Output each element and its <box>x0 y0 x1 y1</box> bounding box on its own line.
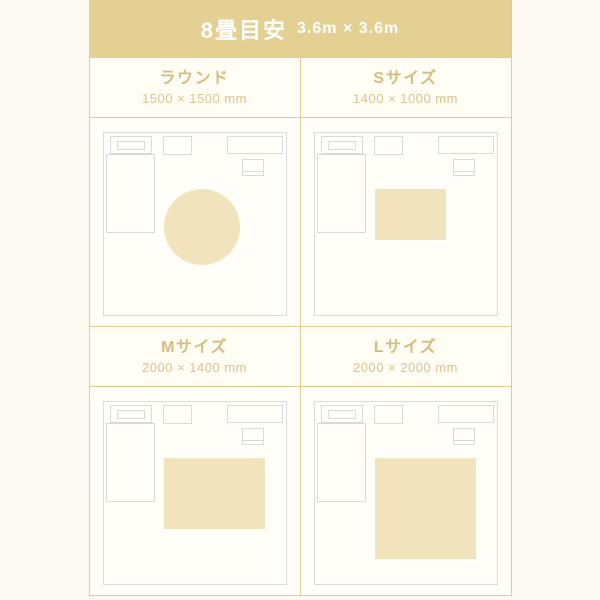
panel-m-header: Mサイズ 2000 × 1400 mm <box>90 327 300 387</box>
panel-l-header: Lサイズ 2000 × 2000 mm <box>301 327 511 387</box>
bed <box>317 154 366 233</box>
rug-l <box>375 458 476 559</box>
panel-l: Lサイズ 2000 × 2000 mm <box>300 326 511 595</box>
size-guide-card: 8畳目安 3.6m × 3.6m ラウンド 1500 × 1500 mm <box>89 0 512 596</box>
shelf <box>163 405 192 424</box>
room-diagram-area <box>90 118 300 326</box>
chair-back-line <box>243 171 263 172</box>
room-diagram-area <box>301 118 511 326</box>
room-diagram-area <box>90 387 300 595</box>
rug-s <box>375 189 446 240</box>
tatami-title: 8畳目安 <box>201 13 287 45</box>
tatami-header: 8畳目安 3.6m × 3.6m <box>90 0 511 57</box>
desk <box>227 136 283 154</box>
pillow-inner <box>328 141 356 150</box>
bed <box>106 423 155 502</box>
desk <box>438 136 494 154</box>
shelf <box>374 136 403 155</box>
rug-m <box>164 458 265 529</box>
panel-title: Lサイズ <box>374 338 437 357</box>
size-panel-grid: ラウンド 1500 × 1500 mm S <box>90 57 511 595</box>
panel-size-label: 2000 × 1400 mm <box>142 360 247 375</box>
panel-title: Mサイズ <box>161 338 228 357</box>
bed <box>317 423 366 502</box>
chair-back-line <box>243 440 263 441</box>
panel-s: Sサイズ 1400 × 1000 mm <box>300 57 511 326</box>
chair-back-line <box>454 440 474 441</box>
shelf <box>163 136 192 155</box>
room-outline <box>103 401 287 585</box>
shelf <box>374 405 403 424</box>
panel-size-label: 1400 × 1000 mm <box>353 91 458 106</box>
pillow-inner <box>328 410 356 419</box>
room-outline <box>103 132 287 316</box>
chair <box>242 428 264 445</box>
room-outline <box>314 401 498 585</box>
chair-back-line <box>454 171 474 172</box>
panel-size-label: 1500 × 1500 mm <box>142 91 247 106</box>
panel-m: Mサイズ 2000 × 1400 mm <box>90 326 300 595</box>
panel-s-header: Sサイズ 1400 × 1000 mm <box>301 58 511 118</box>
room-diagram-area <box>301 387 511 595</box>
chair <box>242 159 264 176</box>
room-dimensions: 3.6m × 3.6m <box>297 20 399 38</box>
pillow-inner <box>117 410 145 419</box>
panel-round: ラウンド 1500 × 1500 mm <box>90 57 300 326</box>
chair <box>453 428 475 445</box>
panel-title: ラウンド <box>159 69 229 88</box>
desk <box>438 405 494 423</box>
pillow-inner <box>117 141 145 150</box>
panel-title: Sサイズ <box>373 69 437 88</box>
panel-round-header: ラウンド 1500 × 1500 mm <box>90 58 300 118</box>
bed <box>106 154 155 233</box>
chair <box>453 159 475 176</box>
room-outline <box>314 132 498 316</box>
rug-round <box>164 189 240 265</box>
panel-size-label: 2000 × 2000 mm <box>353 360 458 375</box>
desk <box>227 405 283 423</box>
